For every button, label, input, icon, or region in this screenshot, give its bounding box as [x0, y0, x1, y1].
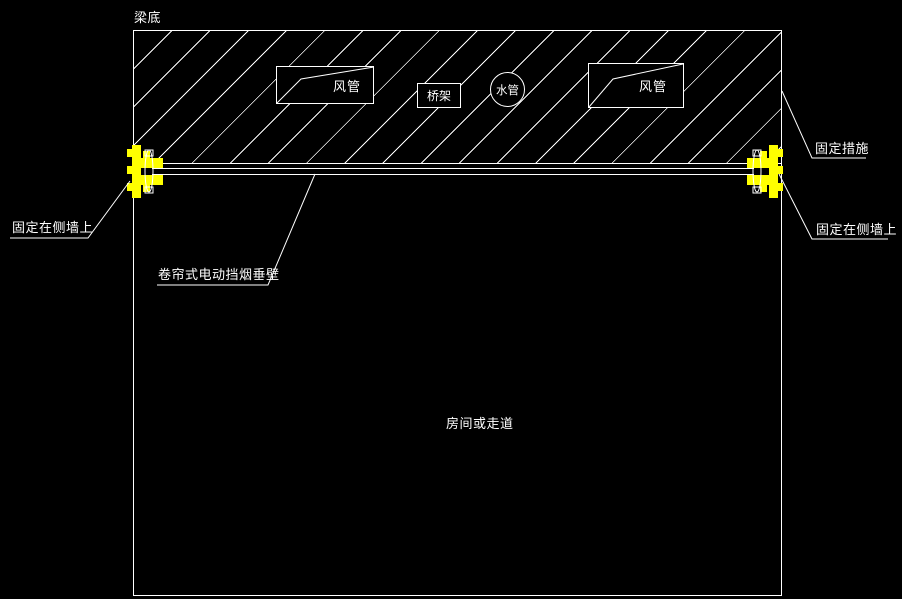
left-fixture-tab-bottom: [143, 185, 150, 192]
fixed-side-wall-right-label: 固定在侧墙上: [816, 223, 897, 238]
water-pipe-label: 水管: [496, 82, 519, 98]
floor-line: [133, 595, 782, 596]
smoke-barrier-bottom-line: [152, 174, 754, 175]
left-fixture-tooth: [127, 183, 132, 191]
beam-bottom-label: 梁底: [134, 11, 161, 26]
duct-symbol-left: 风管: [276, 66, 374, 104]
left-fixture-plate: [132, 145, 141, 198]
right-wall-line: [781, 30, 782, 596]
duct-right-label: 风管: [639, 76, 667, 95]
left-fixture-arm-bottom: [141, 175, 163, 185]
right-fixture-tooth: [778, 149, 783, 157]
duct-left-label: 风管: [333, 76, 361, 95]
left-fixture-tab-top: [143, 151, 150, 158]
left-fixture-tooth: [127, 166, 132, 174]
water-pipe-symbol: 水管: [490, 72, 525, 107]
smoke-barrier-top-line: [152, 168, 754, 169]
right-fixture-tab-top: [760, 151, 767, 158]
smoke-barrier-label: 卷帘式电动挡烟垂壁: [158, 268, 280, 283]
fixing-measure-label: 固定措施: [815, 142, 869, 157]
cable-tray-label: 桥架: [427, 87, 451, 104]
cable-tray-symbol: 桥架: [417, 83, 461, 108]
duct-symbol-right: 风管: [588, 63, 684, 108]
fixed-side-wall-left-label: 固定在侧墙上: [12, 221, 93, 236]
right-fixture-plate: [769, 145, 778, 198]
left-fixture-arm-top: [141, 158, 163, 168]
left-fixture-tooth: [127, 149, 132, 157]
left-wall-line: [133, 30, 134, 596]
cad-drawing-canvas: 风管 桥架 水管 风管 梁底 固定措施 固定在侧墙上 固定: [0, 0, 902, 599]
right-fixture-tooth: [778, 183, 783, 191]
right-fixture-arm-bottom: [747, 175, 769, 185]
right-fixture-arm-top: [747, 158, 769, 168]
right-fixture-tab-bottom: [760, 185, 767, 192]
right-fixture-tooth: [778, 166, 783, 174]
room-corridor-label: 房间或走道: [446, 417, 514, 432]
